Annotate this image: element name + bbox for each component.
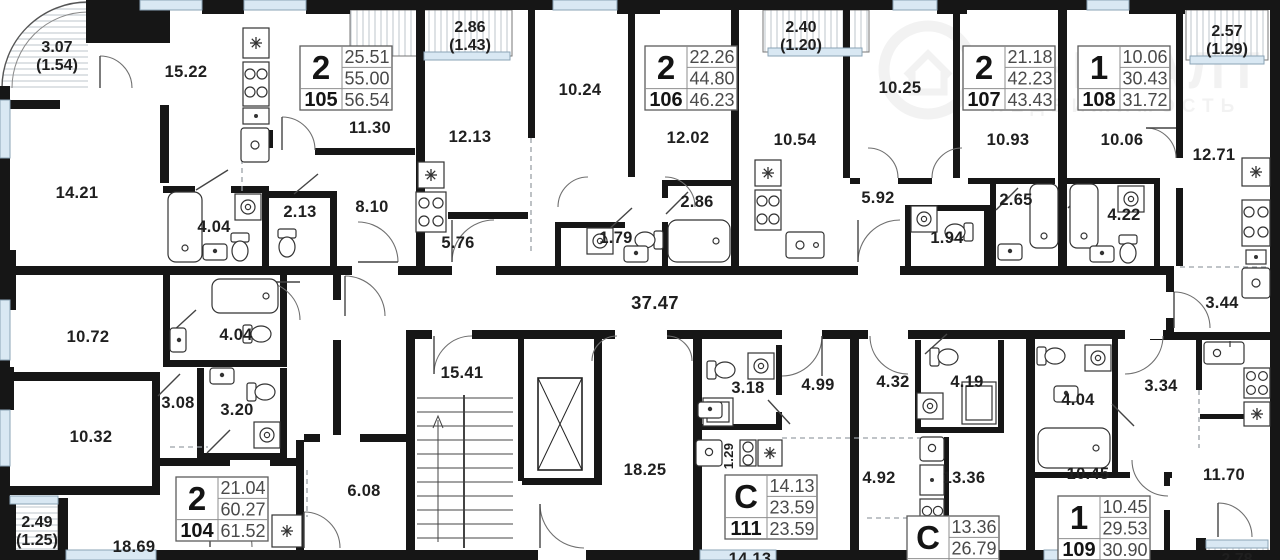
balcony-window: [10, 496, 58, 504]
room-area-label: 14.13: [729, 550, 772, 560]
apartment-card: 210622.2644.8046.23: [645, 46, 737, 111]
window: [0, 410, 10, 466]
apartment-rooms-count: 2: [188, 480, 206, 517]
room-area-label: 4.92: [862, 469, 895, 487]
apartment-total-area: 56.54: [344, 90, 389, 110]
apartment-card: 210421.0460.2761.52: [176, 477, 268, 542]
room-area-label: 10.54: [774, 131, 817, 149]
balcony-coef-label: (1.43): [449, 37, 491, 54]
room-area-label: 12.02: [667, 129, 710, 147]
window: [0, 300, 10, 360]
apartment-area: 30.43: [1122, 69, 1167, 89]
room-area-label: 3.34: [1144, 377, 1178, 395]
staircase: [417, 395, 513, 548]
apartment-total-area: 46.23: [689, 90, 734, 110]
room-area-label: 4.04: [1061, 391, 1095, 409]
apartment-card: 210721.1842.2343.43: [963, 46, 1055, 111]
apartment-number: 104: [180, 520, 214, 542]
room-area-label: 3.20: [220, 401, 253, 419]
room-area-label: 14.21: [56, 184, 99, 202]
apartment-card: 110810.0630.4331.72: [1078, 46, 1170, 111]
balcony-area-label: 2.40: [785, 19, 816, 36]
window: [893, 0, 937, 10]
apartment-living-area: 10.06: [1122, 47, 1167, 67]
room-area-label: 10.72: [67, 328, 110, 346]
apartment-card: С13.3626.79: [907, 516, 999, 560]
apartment-area: 44.80: [689, 69, 734, 89]
balcony-area-label: 2.86: [454, 19, 485, 36]
stove-icon: [243, 62, 269, 106]
apartment-living-area: 13.36: [951, 517, 996, 537]
apartment-rooms-count: С: [734, 478, 758, 515]
room-area-label: 10.32: [70, 428, 113, 446]
room-area-label: 3.44: [1205, 294, 1239, 312]
apartment-rooms-count: 2: [975, 49, 993, 86]
balcony-area-label: 2.57: [1211, 23, 1242, 40]
apartment-area: 55.00: [344, 69, 389, 89]
apartment-number: 108: [1082, 89, 1115, 111]
stove-icon: [416, 192, 446, 232]
balcony-area-label: 3.07: [41, 39, 72, 56]
apartment-area: 42.23: [1007, 69, 1052, 89]
window: [244, 0, 306, 10]
balcony-area-label: 2.78: [1221, 551, 1252, 560]
room-area-label: 10.45: [1067, 465, 1110, 483]
apartment-total-area: 23.59: [769, 519, 814, 539]
apartment-card: 210525.5155.0056.54: [300, 46, 392, 111]
room-area-label: 2.86: [680, 193, 713, 211]
apartment-rooms-count: 1: [1070, 499, 1088, 536]
room-area-label: 4.32: [876, 373, 909, 391]
room-area-label: 8.10: [355, 198, 388, 216]
balcony-coef-label: (1.54): [36, 57, 78, 74]
apartment-living-area: 10.45: [1102, 497, 1147, 517]
apartment-card: С11114.1323.5923.59: [725, 475, 817, 540]
balcony-coef-label: (1.29): [1206, 41, 1248, 58]
balcony-window: [1206, 540, 1268, 548]
apartment-living-area: 25.51: [344, 47, 389, 67]
apartment-area: 23.59: [769, 498, 814, 518]
floor-plan-page: ОНРЕАЛТ НЕДВИЖИМОСТЬ: [0, 0, 1280, 560]
apartment-total-area: 61.52: [220, 521, 265, 541]
room-area-label: 10.25: [879, 79, 922, 97]
room-area-label: 37.47: [631, 292, 679, 313]
apartment-card: 110910.4529.5330.90: [1058, 496, 1150, 560]
room-area-label: 11.70: [1203, 466, 1245, 484]
room-area-label: 11.30: [349, 119, 391, 137]
room-area-label: 4.99: [801, 376, 834, 394]
room-area-label: 4.22: [1107, 206, 1140, 224]
room-area-label: 10.93: [987, 131, 1030, 149]
stove-icon: [755, 190, 781, 230]
apartment-number: 105: [304, 89, 337, 111]
apartment-number: 109: [1062, 539, 1095, 560]
room-area-label: 1.94: [930, 229, 964, 247]
balcony-coef-label: (1.25): [16, 532, 58, 549]
room-area-label: 1.79: [599, 229, 632, 247]
apartment-living-area: 21.18: [1007, 47, 1052, 67]
room-area-label: 1.29: [721, 443, 736, 470]
apartment-rooms-count: 2: [657, 49, 675, 86]
apartment-rooms-count: 2: [312, 49, 330, 86]
apartment-rooms-count: С: [916, 519, 940, 556]
apartment-living-area: 14.13: [769, 476, 814, 496]
apartment-number: 107: [967, 89, 1000, 111]
apartment-rooms-count: 1: [1090, 49, 1108, 86]
floor-plan: ОНРЕАЛТ НЕДВИЖИМОСТЬ: [0, 0, 1280, 560]
room-area-label: 2.65: [999, 191, 1032, 209]
room-area-label: 13.36: [943, 469, 986, 487]
bathtub-icon: [668, 220, 730, 262]
apartment-area: 26.79: [951, 539, 996, 559]
window: [1087, 0, 1129, 10]
apartment-living-area: 22.26: [689, 47, 734, 67]
apartment-number: 111: [730, 518, 761, 540]
apartment-total-area: 30.90: [1102, 540, 1147, 560]
room-area-label: 6.08: [347, 482, 380, 500]
window: [553, 0, 617, 10]
room-area-label: 10.06: [1101, 131, 1144, 149]
room-area-label: 4.04: [219, 326, 253, 344]
room-area-label: 3.18: [731, 379, 764, 397]
room-area-label: 4.19: [950, 373, 983, 391]
room-area-label: 5.76: [441, 234, 474, 252]
room-area-label: 10.24: [559, 81, 602, 99]
room-area-label: 2.13: [283, 203, 316, 221]
apartment-area: 29.53: [1102, 519, 1147, 539]
window: [0, 100, 10, 158]
apartment-total-area: 31.72: [1122, 90, 1167, 110]
stove-icon: [1242, 200, 1270, 246]
apartment-area: 60.27: [220, 500, 265, 520]
room-area-label: 5.92: [861, 189, 894, 207]
apartment-living-area: 21.04: [220, 478, 265, 498]
elevator: [538, 378, 582, 470]
balcony-area-label: 2.49: [21, 514, 52, 531]
apartment-number: 106: [649, 89, 682, 111]
room-area-label: 18.69: [113, 538, 156, 556]
room-area-label: 15.41: [441, 364, 484, 382]
room-area-label: 12.13: [449, 128, 492, 146]
room-area-label: 4.04: [197, 218, 231, 236]
room-area-label: 3.08: [161, 394, 194, 412]
balcony-coef-label: (1.20): [780, 37, 822, 54]
apartment-total-area: 43.43: [1007, 90, 1052, 110]
room-area-label: 15.22: [165, 63, 208, 81]
room-area-label: 18.25: [624, 461, 667, 479]
room-area-label: 12.71: [1193, 146, 1236, 164]
window: [140, 0, 202, 10]
